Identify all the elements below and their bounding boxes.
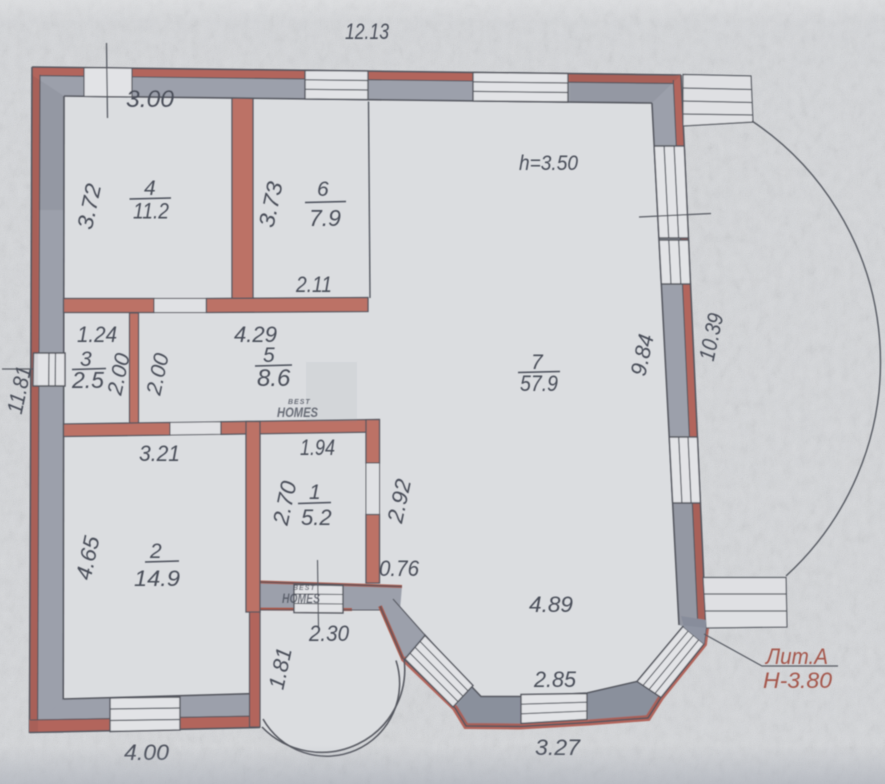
svg-text:0.76: 0.76	[379, 556, 420, 581]
svg-text:2.30: 2.30	[308, 621, 350, 646]
svg-text:1.94: 1.94	[300, 435, 335, 460]
svg-text:11.2: 11.2	[133, 199, 169, 224]
svg-text:Лит.А: Лит.А	[764, 644, 828, 669]
svg-text:2.5: 2.5	[71, 367, 104, 393]
svg-text:Н-3.80: Н-3.80	[763, 668, 833, 693]
svg-text:8.6: 8.6	[257, 365, 291, 392]
svg-text:14.9: 14.9	[134, 566, 180, 591]
svg-text:1: 1	[309, 481, 321, 504]
svg-text:6: 6	[317, 178, 329, 201]
svg-text:5: 5	[263, 344, 275, 367]
svg-text:7.9: 7.9	[309, 205, 341, 231]
svg-text:12.13: 12.13	[345, 19, 390, 44]
svg-text:5.2: 5.2	[301, 505, 332, 530]
svg-text:2.85: 2.85	[533, 667, 577, 692]
svg-text:HOMES: HOMES	[282, 591, 320, 606]
svg-text:2.11: 2.11	[295, 272, 332, 297]
svg-text:3.21: 3.21	[139, 441, 180, 466]
svg-text:57.9: 57.9	[520, 371, 558, 396]
svg-text:h=3.50: h=3.50	[519, 152, 578, 175]
svg-text:2: 2	[149, 540, 162, 563]
svg-text:HOMES: HOMES	[277, 405, 318, 420]
svg-text:4.89: 4.89	[529, 592, 573, 617]
svg-text:3.00: 3.00	[126, 86, 175, 113]
svg-text:1.24: 1.24	[77, 322, 117, 347]
svg-text:4: 4	[144, 177, 156, 200]
